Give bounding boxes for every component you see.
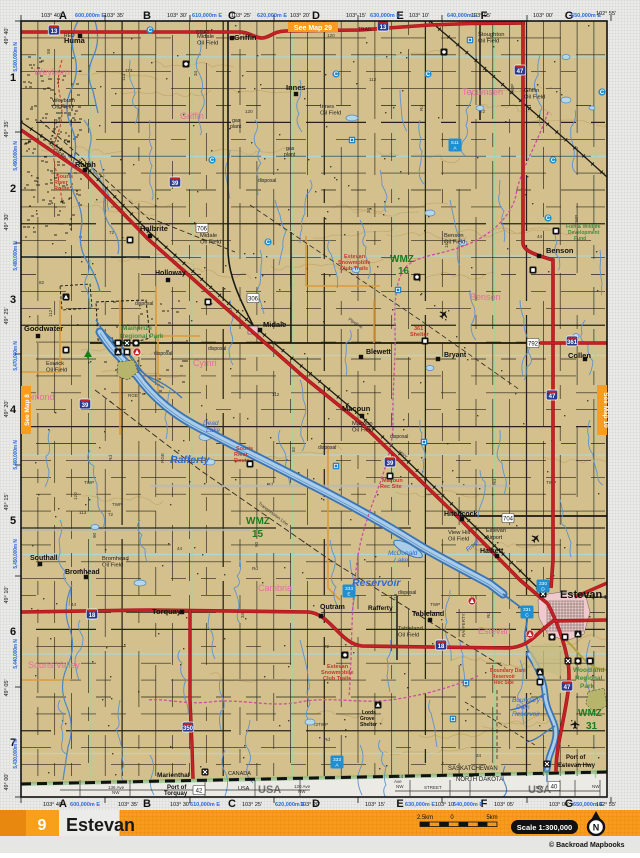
svg-text:39: 39 <box>172 181 179 187</box>
svg-text:Dam: Dam <box>516 704 530 711</box>
svg-text:plant: plant <box>284 152 296 158</box>
svg-text:WMZ: WMZ <box>246 516 270 527</box>
svg-text:NW: NW <box>536 785 544 790</box>
svg-text:Oil Field: Oil Field <box>320 111 341 117</box>
svg-text:49° 20': 49° 20' <box>4 400 10 417</box>
svg-text:disposal: disposal <box>390 434 408 440</box>
svg-text:704: 704 <box>503 517 514 523</box>
svg-text:NW: NW <box>592 784 600 789</box>
svg-text:Boundary: Boundary <box>512 697 541 704</box>
svg-text:C: C <box>551 158 556 164</box>
svg-text:C: C <box>426 72 431 78</box>
svg-text:103° 40': 103° 40' <box>43 802 63 808</box>
svg-text:TWP: TWP <box>318 722 328 727</box>
svg-text:103° 15': 103° 15' <box>365 802 385 808</box>
svg-text:Lake: Lake <box>394 557 408 564</box>
svg-text:640,000m E: 640,000m E <box>453 802 483 808</box>
svg-text:Scale 1:300,000: Scale 1:300,000 <box>517 823 572 832</box>
svg-text:COAT: COAT <box>196 30 210 36</box>
svg-text:49° 15': 49° 15' <box>4 493 10 510</box>
svg-text:1: 1 <box>10 72 16 84</box>
svg-text:B: B <box>143 798 151 810</box>
svg-text:RGE: RGE <box>128 393 138 398</box>
svg-text:Goodwater: Goodwater <box>24 324 63 333</box>
svg-text:Estevan: Estevan <box>486 528 506 534</box>
svg-text:See Map 29: See Map 29 <box>294 25 332 32</box>
svg-text:72: 72 <box>324 644 330 649</box>
svg-text:RGE: RGE <box>160 453 165 463</box>
svg-text:Rd: Rd <box>108 455 113 461</box>
svg-text:103° 25': 103° 25' <box>242 802 262 808</box>
svg-text:42: 42 <box>196 789 203 795</box>
svg-text:NORTH DAKOTA: NORTH DAKOTA <box>456 777 503 783</box>
svg-text:9: 9 <box>38 817 47 834</box>
svg-text:600,000m E: 600,000m E <box>70 802 100 808</box>
svg-text:103° 25': 103° 25' <box>231 13 251 19</box>
svg-text:113: 113 <box>79 510 87 515</box>
svg-text:120: 120 <box>327 33 335 38</box>
svg-text:Estevan: Estevan <box>66 815 135 835</box>
svg-text:113: 113 <box>121 73 126 81</box>
svg-text:Park: Park <box>580 683 594 690</box>
svg-text:Shelter: Shelter <box>360 722 377 728</box>
svg-text:C: C <box>210 158 215 164</box>
svg-text:2: 2 <box>10 183 16 195</box>
svg-text:Rafferty: Rafferty <box>368 605 393 612</box>
svg-text:Estevan Hwy: Estevan Hwy <box>558 763 596 769</box>
svg-text:SASKATCHEWAN: SASKATCHEWAN <box>448 766 498 772</box>
svg-text:792: 792 <box>528 342 539 348</box>
svg-text:82: 82 <box>39 280 45 285</box>
svg-text:Oil Field: Oil Field <box>197 41 218 47</box>
svg-text:TWP: TWP <box>84 480 94 485</box>
svg-text:Rd: Rd <box>324 737 330 742</box>
svg-text:Benson: Benson <box>546 246 574 255</box>
svg-text:NW: NW <box>396 784 404 789</box>
svg-text:Innes: Innes <box>320 104 334 110</box>
svg-text:Reservoir: Reservoir <box>352 577 401 589</box>
svg-text:Estevan: Estevan <box>560 589 602 601</box>
svg-text:Woodland: Woodland <box>573 667 604 674</box>
svg-text:58: 58 <box>46 48 51 54</box>
svg-text:Macoun: Macoun <box>342 404 371 413</box>
svg-text:13: 13 <box>51 29 58 35</box>
svg-text:Ralph: Ralph <box>75 160 96 169</box>
svg-text:Lake: Lake <box>206 427 220 434</box>
svg-text:Souris Valley: Souris Valley <box>28 660 80 670</box>
svg-text:See Map 8: See Map 8 <box>24 394 31 426</box>
svg-text:Estevan: Estevan <box>478 626 511 636</box>
svg-text:5,430,000m N: 5,430,000m N <box>13 739 19 769</box>
svg-text:630,000m E: 630,000m E <box>405 802 435 808</box>
svg-text:disposal: disposal <box>318 445 336 451</box>
svg-text:Mainprize: Mainprize <box>122 325 152 332</box>
svg-text:See Map 10: See Map 10 <box>602 392 609 428</box>
svg-text:350: 350 <box>183 726 194 732</box>
svg-text:Dead: Dead <box>203 420 219 427</box>
svg-text:Oil Field: Oil Field <box>46 368 67 374</box>
svg-text:102° 55': 102° 55' <box>596 11 616 17</box>
svg-text:103° 00': 103° 00' <box>549 802 569 808</box>
svg-text:640,000m E: 640,000m E <box>447 13 477 19</box>
svg-text:Rafferty: Rafferty <box>170 454 211 466</box>
svg-text:Southall: Southall <box>30 555 58 562</box>
svg-text:82: 82 <box>291 446 296 452</box>
svg-text:Tableland: Tableland <box>412 611 444 618</box>
svg-text:View Hill: View Hill <box>448 530 470 536</box>
svg-text:620,000m E: 620,000m E <box>275 802 305 808</box>
svg-text:90: 90 <box>254 541 259 547</box>
svg-text:Rec Site: Rec Site <box>494 680 514 686</box>
svg-text:plant: plant <box>230 124 242 130</box>
svg-text:C: C <box>148 28 153 34</box>
svg-text:5,450,000m N: 5,450,000m N <box>13 539 19 569</box>
svg-text:Rec Site: Rec Site <box>380 484 402 490</box>
svg-text:disposal: disposal <box>208 346 226 352</box>
svg-text:Halkett: Halkett <box>480 548 504 555</box>
svg-text:90: 90 <box>92 532 97 538</box>
svg-text:113: 113 <box>125 68 133 73</box>
svg-text:103° 05': 103° 05' <box>494 802 514 808</box>
svg-text:5,440,000m N: 5,440,000m N <box>13 639 19 669</box>
svg-text:Fund: Fund <box>574 236 586 242</box>
svg-text:630,000m E: 630,000m E <box>370 13 400 19</box>
svg-text:Oil Field: Oil Field <box>102 563 123 569</box>
svg-text:49° 30': 49° 30' <box>4 213 10 230</box>
svg-text:40: 40 <box>551 785 558 791</box>
svg-text:Oil Field: Oil Field <box>524 95 545 101</box>
svg-text:39: 39 <box>82 403 89 409</box>
svg-text:49° 10': 49° 10' <box>4 586 10 603</box>
svg-text:C: C <box>546 216 551 222</box>
svg-text:Rd: Rd <box>486 612 491 618</box>
svg-text:5: 5 <box>10 515 16 527</box>
svg-text:Cambria: Cambria <box>258 583 292 593</box>
svg-text:Cymri: Cymri <box>193 358 217 368</box>
svg-text:103° 20': 103° 20' <box>290 13 310 19</box>
svg-text:Rd: Rd <box>54 118 60 123</box>
svg-text:Oil Field: Oil Field <box>448 537 469 543</box>
svg-text:306: 306 <box>248 297 259 303</box>
svg-text:6: 6 <box>10 626 16 638</box>
svg-text:E: E <box>396 798 403 810</box>
svg-text:C: C <box>600 90 605 96</box>
svg-text:18: 18 <box>89 613 96 619</box>
svg-text:Oil Field: Oil Field <box>478 39 499 45</box>
svg-text:103° 10': 103° 10' <box>409 13 429 19</box>
svg-text:34: 34 <box>193 70 198 76</box>
svg-text:34: 34 <box>366 207 371 213</box>
svg-text:Weyburn: Weyburn <box>34 67 70 77</box>
svg-text:Innes: Innes <box>286 83 306 92</box>
svg-text:5km: 5km <box>486 815 497 821</box>
svg-text:Collen: Collen <box>568 351 591 360</box>
svg-text:112: 112 <box>272 392 280 397</box>
svg-text:Oil Field: Oil Field <box>444 240 465 246</box>
svg-text:Tecumseh: Tecumseh <box>462 87 503 97</box>
svg-text:330: 330 <box>539 581 547 587</box>
svg-text:disposal: disposal <box>398 590 416 596</box>
svg-text:Bromhead: Bromhead <box>65 569 100 576</box>
svg-text:CANADA: CANADA <box>228 771 251 777</box>
svg-text:Halbrite: Halbrite <box>140 224 168 233</box>
svg-text:Bromhead: Bromhead <box>102 556 129 562</box>
svg-text:disposal: disposal <box>135 301 153 307</box>
svg-text:Benson: Benson <box>444 233 464 239</box>
svg-text:5,470,000m N: 5,470,000m N <box>13 341 19 371</box>
svg-text:TRAIL: TRAIL <box>358 27 372 33</box>
svg-text:WMZ: WMZ <box>390 254 414 265</box>
svg-text:102° 55': 102° 55' <box>596 802 616 808</box>
svg-text:Rd: Rd <box>419 105 424 111</box>
svg-text:5,500,000m N: 5,500,000m N <box>13 42 19 72</box>
svg-text:47: 47 <box>549 394 556 400</box>
svg-text:103° 30': 103° 30' <box>167 13 187 19</box>
svg-text:620,000m E: 620,000m E <box>257 13 287 19</box>
svg-text:Holloway: Holloway <box>155 270 186 277</box>
svg-text:4: 4 <box>10 404 17 416</box>
svg-text:31: 31 <box>586 721 598 732</box>
svg-text:Midale: Midale <box>200 233 217 239</box>
svg-text:103° 30': 103° 30' <box>170 802 190 808</box>
svg-text:Route: Route <box>54 186 70 192</box>
svg-text:Torquay: Torquay <box>164 791 188 797</box>
svg-text:39: 39 <box>387 461 394 467</box>
svg-text:361: 361 <box>567 340 578 346</box>
svg-text:Torquay: Torquay <box>152 607 182 616</box>
svg-text:34: 34 <box>240 612 245 618</box>
svg-text:Rd: Rd <box>492 479 497 485</box>
svg-text:C: C <box>228 798 236 810</box>
svg-text:Port of: Port of <box>566 755 586 761</box>
svg-text:Oil Field: Oil Field <box>52 105 73 111</box>
svg-text:5,460,000m N: 5,460,000m N <box>13 440 19 470</box>
svg-text:610,000m E: 610,000m E <box>192 13 222 19</box>
svg-text:49° 00': 49° 00' <box>4 773 10 790</box>
svg-text:72: 72 <box>108 512 114 517</box>
svg-text:© Backroad Mapbooks: © Backroad Mapbooks <box>549 841 625 849</box>
svg-text:47: 47 <box>517 69 524 75</box>
svg-text:34: 34 <box>476 753 482 758</box>
svg-text:disposal: disposal <box>258 178 276 184</box>
svg-text:5,480,000m N: 5,480,000m N <box>13 241 19 271</box>
svg-text:Griffin: Griffin <box>234 33 257 42</box>
svg-text:103° 10': 103° 10' <box>435 802 455 808</box>
svg-text:Club Trails: Club Trails <box>323 676 351 682</box>
svg-text:Midale: Midale <box>263 320 286 329</box>
svg-text:C: C <box>525 613 529 619</box>
svg-text:WMZ: WMZ <box>578 708 602 719</box>
svg-text:McDonald: McDonald <box>388 550 418 557</box>
svg-text:Oil Field: Oil Field <box>200 240 221 246</box>
svg-text:Macoun: Macoun <box>352 421 373 427</box>
svg-text:STREET: STREET <box>424 785 442 790</box>
svg-text:TWP: TWP <box>112 502 122 507</box>
svg-text:Weyburn: Weyburn <box>52 98 75 104</box>
svg-text:Oil Field: Oil Field <box>398 633 419 639</box>
svg-text:C: C <box>334 72 339 78</box>
svg-text:Griffin: Griffin <box>180 111 204 121</box>
svg-text:Tableland: Tableland <box>398 626 423 632</box>
svg-text:disposal: disposal <box>154 351 172 357</box>
svg-text:49° 40': 49° 40' <box>4 27 10 44</box>
svg-text:USA: USA <box>238 786 250 792</box>
svg-text:49° 05': 49° 05' <box>4 679 10 696</box>
svg-text:RED: RED <box>64 33 75 39</box>
svg-text:511: 511 <box>451 140 459 146</box>
svg-text:Outram: Outram <box>320 604 345 611</box>
svg-text:331: 331 <box>523 607 531 613</box>
svg-text:Airport: Airport <box>486 535 503 541</box>
svg-text:49° 25': 49° 25' <box>4 307 10 324</box>
svg-text:103° 35': 103° 35' <box>118 802 138 808</box>
svg-text:Benson: Benson <box>470 292 501 302</box>
svg-text:44: 44 <box>177 546 183 551</box>
svg-text:103° 40': 103° 40' <box>41 13 61 19</box>
svg-text:103° 00': 103° 00' <box>533 13 553 19</box>
svg-text:15: 15 <box>252 529 264 540</box>
svg-text:Club Trails: Club Trails <box>340 266 368 272</box>
svg-text:Shelter: Shelter <box>410 332 430 338</box>
svg-text:Marienthal: Marienthal <box>157 772 190 779</box>
svg-text:Bryant: Bryant <box>444 352 467 359</box>
svg-text:103° 15': 103° 15' <box>346 13 366 19</box>
svg-text:44: 44 <box>71 602 77 607</box>
svg-text:Regional: Regional <box>575 675 603 682</box>
svg-text:Oil Field: Oil Field <box>352 428 373 434</box>
svg-text:120: 120 <box>245 109 253 114</box>
svg-text:112: 112 <box>369 77 377 82</box>
svg-text:Griffin: Griffin <box>524 88 539 94</box>
svg-text:N: N <box>593 823 600 833</box>
svg-text:13: 13 <box>380 25 387 31</box>
svg-text:Blewett: Blewett <box>366 349 392 356</box>
svg-text:Stoughton: Stoughton <box>478 32 504 38</box>
svg-text:TWP: TWP <box>430 602 440 607</box>
svg-text:C: C <box>266 240 271 246</box>
svg-text:Reservoir: Reservoir <box>512 711 541 718</box>
svg-text:D: D <box>312 10 320 22</box>
svg-text:333: 333 <box>345 586 353 592</box>
svg-text:103° 35': 103° 35' <box>104 13 124 19</box>
svg-text:Rd: Rd <box>252 566 258 571</box>
svg-text:Regional Park: Regional Park <box>120 333 164 340</box>
svg-text:Eswick: Eswick <box>46 361 64 367</box>
svg-text:16: 16 <box>398 266 410 277</box>
svg-text:E: E <box>347 592 350 598</box>
svg-text:112: 112 <box>48 309 53 317</box>
svg-text:333: 333 <box>333 757 341 763</box>
svg-text:D: D <box>541 587 545 593</box>
svg-text:610,000m E: 610,000m E <box>190 802 220 808</box>
svg-text:120: 120 <box>73 492 78 500</box>
svg-text:600,000m E: 600,000m E <box>75 13 105 19</box>
svg-text:706: 706 <box>197 227 208 233</box>
svg-text:Hitchcock: Hitchcock <box>444 511 478 518</box>
svg-text:B: B <box>143 10 151 22</box>
svg-text:18: 18 <box>438 644 445 650</box>
svg-text:5,490,000m N: 5,490,000m N <box>13 141 19 171</box>
svg-text:RAFFERTY: RAFFERTY <box>461 613 466 637</box>
svg-text:3: 3 <box>10 294 16 306</box>
svg-text:49° 35': 49° 35' <box>4 120 10 137</box>
svg-text:44: 44 <box>537 234 543 239</box>
svg-text:NW: NW <box>112 790 120 795</box>
svg-text:2.5km: 2.5km <box>417 815 433 821</box>
svg-text:47: 47 <box>564 685 571 691</box>
